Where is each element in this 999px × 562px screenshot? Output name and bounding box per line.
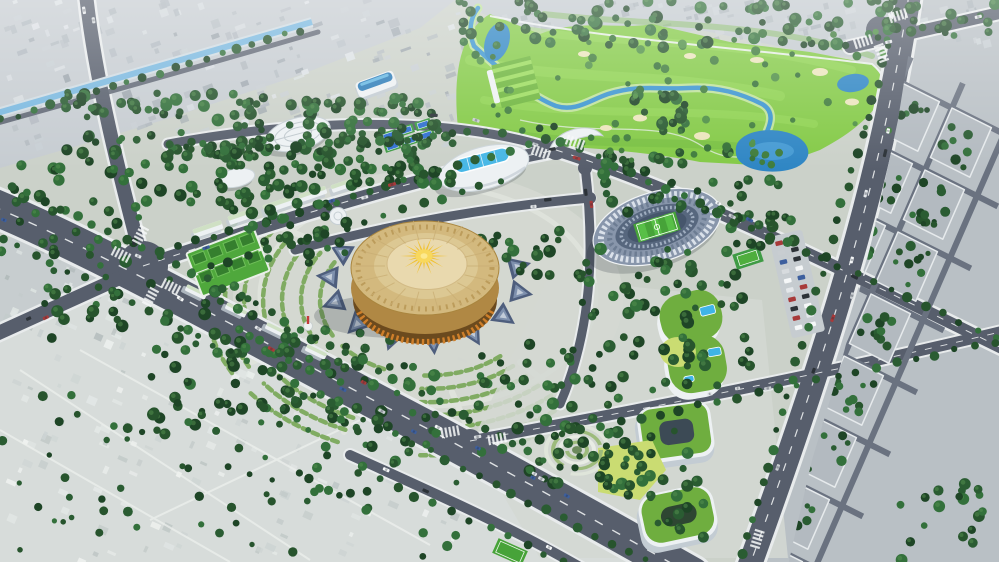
vehicle <box>530 205 536 209</box>
masterplan-scene <box>0 0 999 562</box>
monument-flag <box>307 316 309 324</box>
atmospheric-haze <box>0 0 999 170</box>
masterplan-aerial-rendering <box>0 0 999 562</box>
